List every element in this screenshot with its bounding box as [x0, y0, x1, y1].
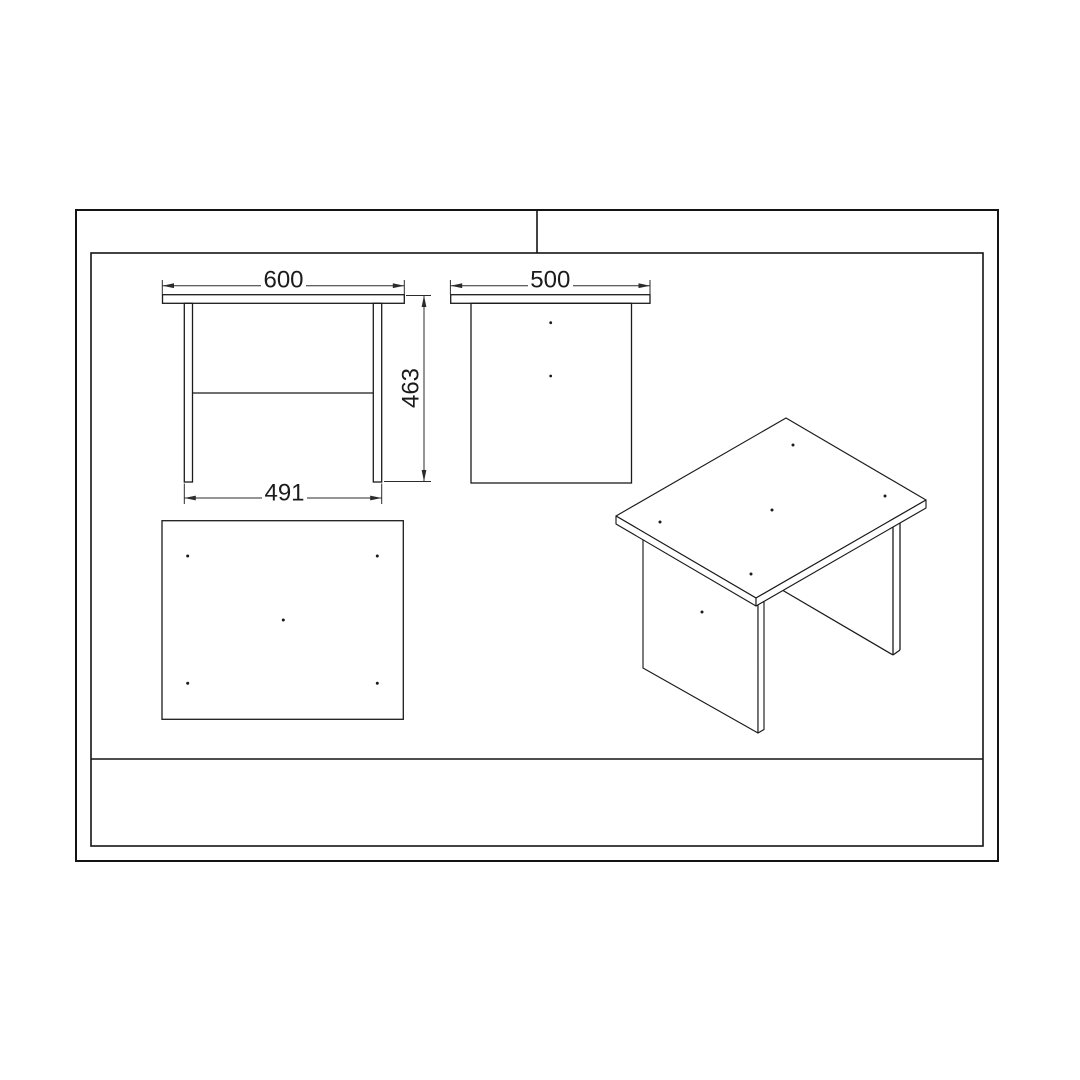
leg-bottom-edge [893, 650, 900, 655]
leg-floor-edge [783, 591, 893, 656]
fastener-dot [376, 555, 379, 558]
fastener-dot [701, 611, 704, 614]
dimension-label-leg-span: 491 [264, 480, 304, 507]
fastener-dot [549, 375, 552, 378]
fastener-dot [186, 682, 189, 685]
front-view: 600 491 463 [162, 267, 431, 507]
arrowhead-left [184, 496, 196, 501]
dimension-label-top-depth: 500 [530, 267, 570, 294]
fastener-dot [282, 619, 285, 622]
dimension-leg-span: 491 [184, 480, 381, 507]
arrowhead-bottom [422, 470, 427, 482]
dimension-height: 463 [384, 296, 431, 482]
front-right-leg [373, 303, 381, 482]
dimension-label-height: 463 [398, 368, 425, 408]
dimension-top-depth: 500 [450, 267, 650, 295]
front-left-leg [184, 303, 192, 482]
dimension-top-width: 600 [162, 267, 404, 295]
arrowhead-right [370, 496, 382, 501]
fastener-dot [792, 444, 795, 447]
fastener-dot [750, 573, 753, 576]
isometric-view [616, 418, 926, 733]
fastener-dot [659, 521, 662, 524]
rotated-height-label: 463 [398, 366, 425, 411]
side-panel [471, 303, 632, 483]
side-tabletop [451, 295, 650, 304]
leg-edge-face [758, 597, 764, 734]
fastener-dot [549, 321, 552, 324]
fastener-dot [771, 509, 774, 512]
arrowhead-left [451, 283, 463, 288]
front-tabletop [163, 295, 405, 304]
side-view: 500 [450, 267, 650, 484]
technical-drawing-canvas: 600 491 463 [0, 0, 1080, 1080]
arrowhead-top [422, 296, 427, 308]
arrowhead-left [163, 283, 175, 288]
fastener-dot [884, 495, 887, 498]
dimension-label-top-width: 600 [263, 267, 303, 294]
drawing-sheet: 600 491 463 [0, 0, 1080, 1080]
arrowhead-right [639, 283, 651, 288]
top-view [162, 521, 403, 720]
arrowhead-right [393, 283, 405, 288]
fastener-dot [376, 682, 379, 685]
fastener-dot [186, 555, 189, 558]
